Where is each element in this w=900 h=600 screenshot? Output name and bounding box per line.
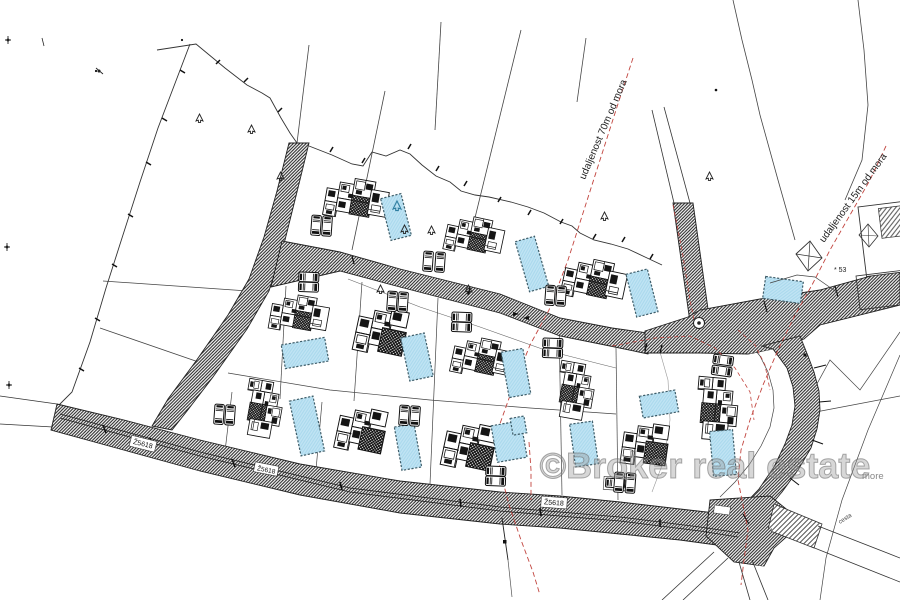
svg-text:* 53: * 53 xyxy=(834,267,847,274)
svg-text:©Broker real estate: ©Broker real estate xyxy=(540,445,871,486)
